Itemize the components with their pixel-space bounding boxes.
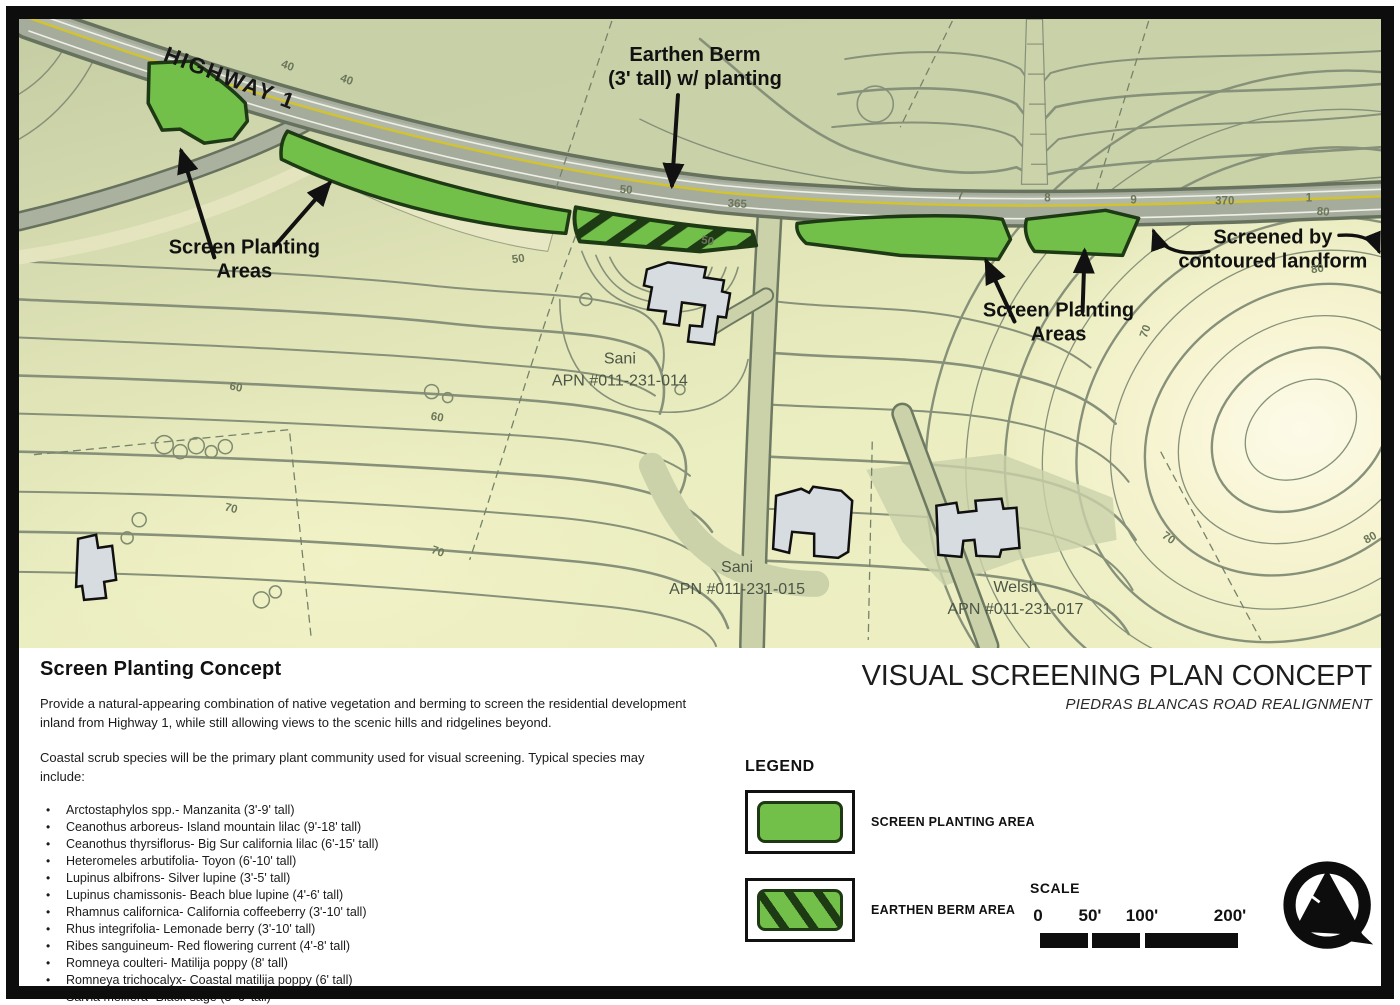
svg-text:APN #011-231-017: APN #011-231-017 (947, 600, 1083, 618)
species-item: Rhamnus californica- California coffeebe… (40, 904, 690, 921)
concept-text-block: Screen Planting Concept Provide a natura… (40, 658, 690, 1005)
species-item: Ceanothus thyrsiflorus- Big Sur californ… (40, 836, 690, 853)
contour-label: 365 (727, 198, 747, 211)
scale-segment (1145, 933, 1238, 948)
species-item: Heteromeles arbutifolia- Toyon (6'-10' t… (40, 853, 690, 870)
legend: LEGEND SCREEN PLANTING AREA EARTHEN BERM… (745, 758, 1035, 966)
species-item: Rhus integrifolia- Lemonade berry (3'-10… (40, 921, 690, 938)
svg-text:APN #011-231-014: APN #011-231-014 (552, 372, 688, 390)
species-item: Ribes sanguineum- Red flowering current … (40, 938, 690, 955)
legend-label: EARTHEN BERM AREA (871, 903, 1015, 917)
legend-heading: LEGEND (745, 758, 1035, 776)
scale-tick: 50' (1079, 906, 1102, 926)
scale-segment (1092, 933, 1140, 948)
concept-paragraph-1: Provide a natural-appearing combination … (40, 695, 690, 733)
legend-item-screen-planting: SCREEN PLANTING AREA (745, 790, 1035, 854)
species-item: Romneya trichocalyx- Coastal matilija po… (40, 972, 690, 989)
svg-text:Screen Planting: Screen Planting (983, 299, 1134, 321)
legend-swatch-box (745, 790, 855, 854)
svg-text:Areas: Areas (217, 260, 273, 282)
contour-label: 50 (700, 234, 715, 248)
plan-sheet: HIGHWAY 1 Earthen Berm (3' tall) w/ plan… (0, 0, 1400, 1005)
contour-label: 50 (511, 253, 525, 267)
svg-text:Screen Planting: Screen Planting (169, 236, 320, 258)
scale-tick: 100' (1126, 906, 1158, 926)
legend-label: SCREEN PLANTING AREA (871, 815, 1035, 829)
svg-text:Sani: Sani (721, 558, 753, 576)
contour-label: 8 (1044, 192, 1051, 204)
species-list: Arctostaphylos spp.- Manzanita (3'-9' ta… (40, 802, 690, 1005)
svg-text:contoured landform: contoured landform (1178, 250, 1367, 272)
species-item: Arctostaphylos spp.- Manzanita (3'-9' ta… (40, 802, 690, 819)
concept-heading: Screen Planting Concept (40, 658, 690, 681)
svg-text:APN #011-231-015: APN #011-231-015 (669, 580, 805, 598)
contour-label: 7 (957, 190, 963, 202)
site-plan-map: HIGHWAY 1 Earthen Berm (3' tall) w/ plan… (19, 19, 1381, 648)
svg-text:Screened by: Screened by (1213, 226, 1333, 248)
species-item: Lupinus chamissonis- Beach blue lupine (… (40, 887, 690, 904)
sheet-subtitle: PIEDRAS BLANCAS ROAD REALIGNMENT (862, 696, 1372, 713)
species-item: Salvia melifera- Black sage (3'-6' tall) (40, 989, 690, 1005)
contour-label: 80 (1316, 206, 1330, 219)
scale-heading: SCALE (1030, 880, 1260, 896)
scale-bar: SCALE 0 50' 100' 200' (1030, 880, 1260, 955)
earthen-berm-swatch-icon (757, 889, 843, 931)
contour-label: 1 (1306, 192, 1313, 204)
svg-text:Welsh: Welsh (993, 578, 1037, 596)
scale-tick: 0 (1033, 906, 1042, 926)
concept-paragraph-2: Coastal scrub species will be the primar… (40, 749, 690, 787)
svg-text:Earthen Berm: Earthen Berm (629, 44, 760, 66)
species-item: Romneya coulteri- Matilija poppy (8' tal… (40, 955, 690, 972)
north-arrow-icon (1282, 856, 1376, 956)
contour-label: 370 (1215, 195, 1234, 207)
species-item: Lupinus albifrons- Silver lupine (3'-5' … (40, 870, 690, 887)
screen-planting-area-polygon (1025, 210, 1138, 255)
svg-text:(3' tall) w/ planting: (3' tall) w/ planting (608, 68, 782, 90)
contour-label: 60 (430, 411, 445, 425)
legend-swatch-box (745, 878, 855, 942)
contour-label: 50 (619, 184, 633, 197)
contour-label: 9 (1130, 194, 1136, 206)
sheet-title: VISUAL SCREENING PLAN CONCEPT (862, 662, 1372, 691)
svg-text:Sani: Sani (604, 350, 636, 368)
title-block: VISUAL SCREENING PLAN CONCEPT PIEDRAS BL… (862, 662, 1372, 713)
svg-text:Areas: Areas (1031, 324, 1087, 346)
screen-planting-swatch-icon (757, 801, 843, 843)
species-item: Ceanothus arboreus- Island mountain lila… (40, 819, 690, 836)
scale-segment (1040, 933, 1088, 948)
contour-label: 80 (1310, 263, 1324, 277)
legend-item-earthen-berm: EARTHEN BERM AREA (745, 878, 1035, 942)
building-footprint-welsh-017 (936, 499, 1019, 557)
scale-tick: 200' (1214, 906, 1246, 926)
